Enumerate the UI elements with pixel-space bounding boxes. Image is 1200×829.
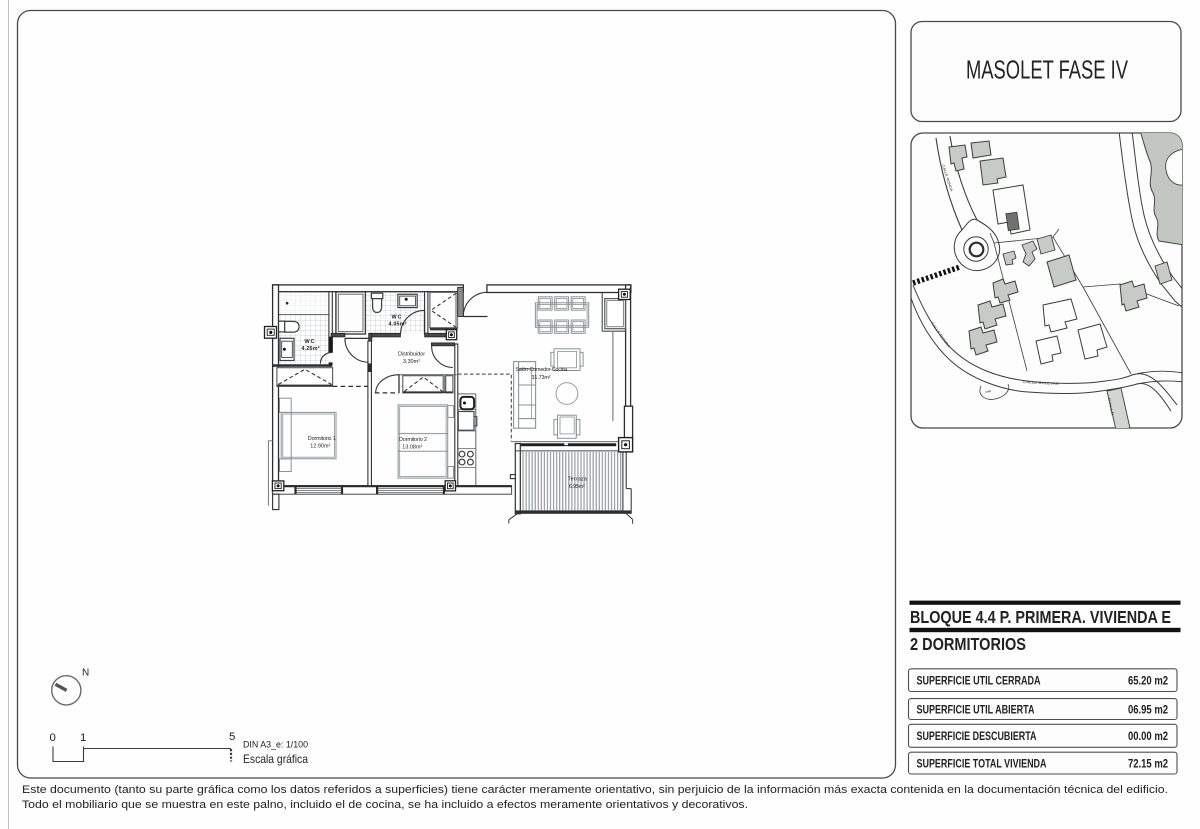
svg-text:3.30m²: 3.30m² bbox=[403, 359, 420, 365]
svg-text:Todo el mobiliario que se mues: Todo el mobiliario que se muestra en est… bbox=[22, 799, 748, 811]
svg-text:Salón-Comedor-Cocina: Salón-Comedor-Cocina bbox=[515, 367, 567, 373]
svg-text:Dormitorio 1: Dormitorio 1 bbox=[308, 436, 336, 442]
svg-text:0: 0 bbox=[50, 732, 56, 744]
svg-text:2 DORMITORIOS: 2 DORMITORIOS bbox=[910, 634, 1026, 654]
svg-text:Escala gráfica: Escala gráfica bbox=[243, 753, 308, 766]
svg-text:06.95 m2: 06.95 m2 bbox=[1128, 703, 1168, 717]
svg-text:WC: WC bbox=[392, 314, 402, 320]
svg-text:5: 5 bbox=[229, 731, 235, 743]
svg-text:00.00 m2: 00.00 m2 bbox=[1128, 729, 1168, 743]
svg-text:SUPERFICIE DESCUBIERTA: SUPERFICIE DESCUBIERTA bbox=[917, 729, 1037, 743]
svg-text:MASOLET FASE IV: MASOLET FASE IV bbox=[966, 57, 1128, 85]
svg-text:Distribuidor: Distribuidor bbox=[398, 352, 425, 358]
svg-text:12.90m²: 12.90m² bbox=[310, 444, 330, 450]
svg-text:Dormitorio 2: Dormitorio 2 bbox=[399, 437, 427, 443]
svg-text:WC: WC bbox=[305, 339, 315, 345]
svg-text:SUPERFICIE TOTAL VIVIENDA: SUPERFICIE TOTAL VIVIENDA bbox=[917, 757, 1047, 771]
svg-text:72.15 m2: 72.15 m2 bbox=[1128, 757, 1168, 771]
svg-text:SUPERFICIE UTIL ABIERTA: SUPERFICIE UTIL ABIERTA bbox=[917, 703, 1035, 717]
svg-text:Terraza: Terraza bbox=[568, 477, 587, 483]
svg-text:BLOQUE 4.4 P. PRIMERA. VIVIEND: BLOQUE 4.4 P. PRIMERA. VIVIENDA E bbox=[910, 607, 1171, 627]
svg-text:SUPERFICIE UTIL CERRADA: SUPERFICIE UTIL CERRADA bbox=[917, 674, 1041, 688]
svg-text:6.95m²: 6.95m² bbox=[569, 484, 585, 490]
svg-text:13.08m²: 13.08m² bbox=[402, 445, 422, 451]
svg-text:Este documento (tanto su parte: Este documento (tanto su parte gráfica c… bbox=[22, 784, 1168, 796]
svg-text:31.73m²: 31.73m² bbox=[532, 375, 551, 381]
svg-text:1: 1 bbox=[80, 732, 86, 744]
svg-text:4.26m²: 4.26m² bbox=[302, 346, 320, 352]
svg-text:4.05m²: 4.05m² bbox=[389, 322, 407, 328]
svg-text:N: N bbox=[82, 668, 89, 679]
svg-text:65.20 m2: 65.20 m2 bbox=[1128, 674, 1168, 688]
svg-text:DIN A3_e: 1/100: DIN A3_e: 1/100 bbox=[243, 740, 308, 751]
